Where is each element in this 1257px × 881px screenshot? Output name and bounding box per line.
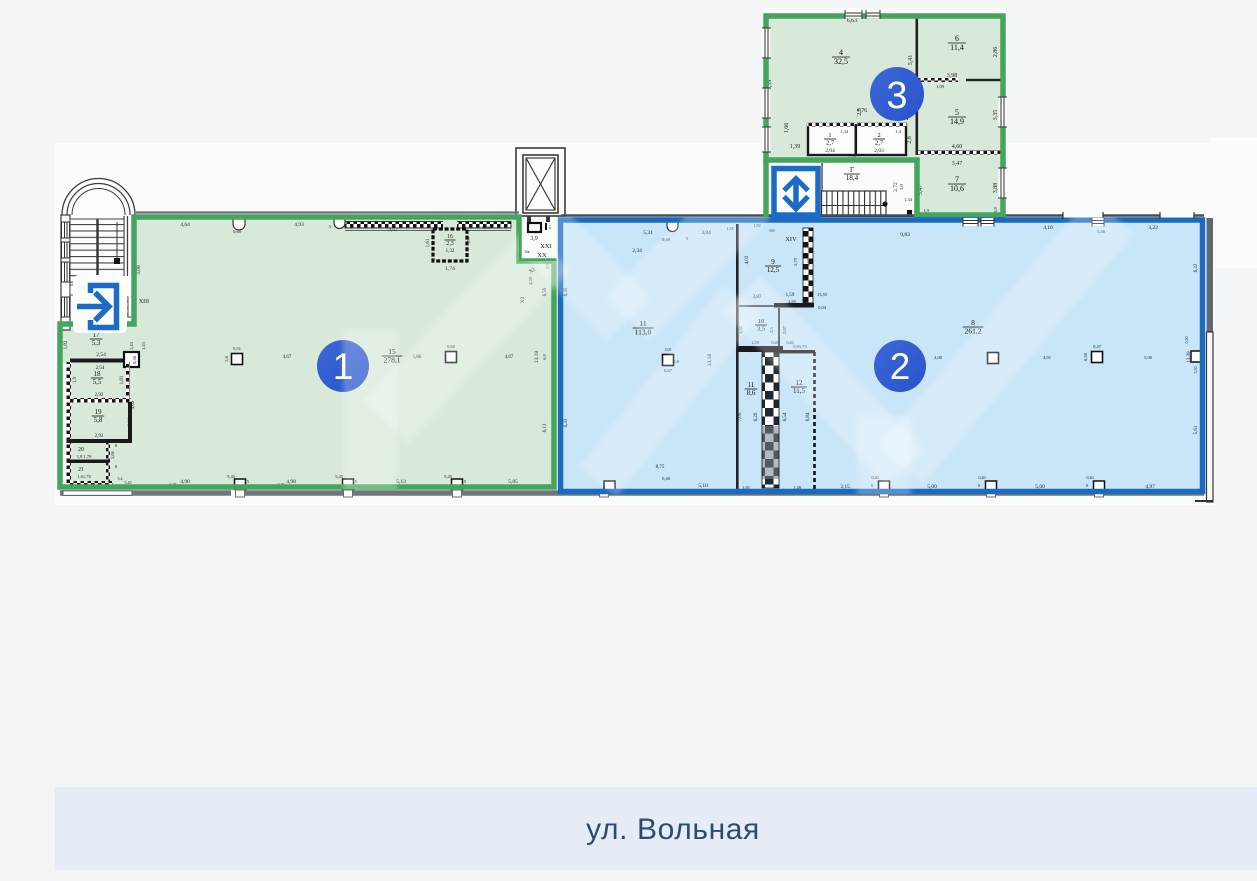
svg-text:5,8: 5,8 xyxy=(94,416,103,424)
svg-text:1,82: 1,82 xyxy=(64,340,69,349)
svg-text:9: 9 xyxy=(771,258,775,266)
svg-text:2,86: 2,86 xyxy=(993,47,999,58)
svg-text:5,31: 5,31 xyxy=(643,230,653,236)
svg-text:3,08: 3,08 xyxy=(136,265,142,275)
svg-text:1,32: 1,32 xyxy=(446,249,455,254)
svg-text:2,03: 2,03 xyxy=(874,148,884,154)
svg-text:4,16: 4,16 xyxy=(1043,225,1053,231)
svg-text:8,75: 8,75 xyxy=(656,465,665,470)
svg-text:4,64: 4,64 xyxy=(180,222,190,228)
svg-text:2,7: 2,7 xyxy=(826,140,835,147)
svg-text:XIII: XIII xyxy=(139,299,149,305)
svg-text:8: 8 xyxy=(1086,483,1088,488)
svg-text:6: 6 xyxy=(955,34,959,43)
svg-text:5,61: 5,61 xyxy=(1194,425,1199,434)
svg-text:2,54: 2,54 xyxy=(96,366,105,371)
svg-text:13,18: 13,18 xyxy=(534,351,540,364)
svg-text:ул. Вольная: ул. Вольная xyxy=(586,813,760,846)
svg-text:2,54: 2,54 xyxy=(96,352,106,358)
svg-text:32,5: 32,5 xyxy=(834,57,848,66)
svg-text:XX: XX xyxy=(537,252,547,259)
svg-text:6,63: 6,63 xyxy=(847,18,858,24)
svg-text:1,39: 1,39 xyxy=(790,144,801,150)
svg-text:7: 7 xyxy=(955,175,959,184)
svg-text:5,10: 5,10 xyxy=(698,483,708,489)
svg-text:18,4: 18,4 xyxy=(846,174,859,182)
svg-text:3,47: 3,47 xyxy=(952,161,963,167)
svg-text:5,05: 5,05 xyxy=(508,479,518,485)
svg-text:12,5: 12,5 xyxy=(767,266,780,274)
svg-text:XIV: XIV xyxy=(785,236,797,243)
svg-text:6,54: 6,54 xyxy=(783,412,788,421)
svg-text:2,34: 2,34 xyxy=(632,248,642,254)
svg-text:6,13: 6,13 xyxy=(543,423,548,432)
svg-text:16: 16 xyxy=(447,234,453,240)
svg-text:21: 21 xyxy=(78,467,84,473)
svg-text:18: 18 xyxy=(94,370,102,378)
svg-text:2,8: 2,8 xyxy=(907,136,913,144)
svg-text:11,4: 11,4 xyxy=(950,43,964,52)
svg-text:2,7: 2,7 xyxy=(875,140,884,147)
svg-text:4: 4 xyxy=(839,48,843,57)
svg-text:4,02: 4,02 xyxy=(131,400,136,409)
svg-text:4,57: 4,57 xyxy=(388,227,398,233)
svg-text:2,5: 2,5 xyxy=(857,108,863,116)
svg-text:2: 2 xyxy=(890,346,911,387)
svg-text:3ж: 3ж xyxy=(524,249,530,254)
svg-text:4,67: 4,67 xyxy=(505,355,514,360)
svg-text:10,6: 10,6 xyxy=(950,184,964,193)
svg-text:3,22: 3,22 xyxy=(1148,225,1158,231)
svg-text:6,33: 6,33 xyxy=(564,418,569,427)
svg-text:6,84: 6,84 xyxy=(806,412,811,421)
svg-text:19: 19 xyxy=(95,408,103,416)
svg-text:13,39: 13,39 xyxy=(1187,351,1192,363)
svg-text:4,90: 4,90 xyxy=(180,479,190,485)
svg-text:8,6: 8,6 xyxy=(747,389,756,397)
svg-text:5: 5 xyxy=(955,108,959,117)
svg-text:4,93: 4,93 xyxy=(294,222,304,228)
svg-text:6,22: 6,22 xyxy=(1194,263,1199,272)
svg-text:2,92: 2,92 xyxy=(95,434,104,439)
svg-text:1,9: 1,9 xyxy=(73,376,78,383)
svg-text:2,3: 2,3 xyxy=(446,241,454,247)
svg-text:4,98: 4,98 xyxy=(286,479,296,485)
svg-text:3,88: 3,88 xyxy=(993,183,999,194)
svg-text:5,3: 5,3 xyxy=(92,339,101,347)
svg-text:6,29: 6,29 xyxy=(754,412,759,421)
svg-text:2: 2 xyxy=(877,132,880,139)
svg-text:9,83: 9,83 xyxy=(900,232,910,238)
svg-text:5,41: 5,41 xyxy=(908,55,914,66)
svg-text:1,61: 1,61 xyxy=(426,238,431,247)
svg-text:4,67: 4,67 xyxy=(283,355,292,360)
svg-text:4,03: 4,03 xyxy=(745,255,750,264)
svg-text:7,05: 7,05 xyxy=(738,412,743,421)
svg-text:3,9: 3,9 xyxy=(530,236,538,242)
svg-text:4,60: 4,60 xyxy=(952,144,963,150)
svg-text:2,92: 2,92 xyxy=(95,393,104,398)
svg-text:8: 8 xyxy=(978,483,980,488)
svg-text:20: 20 xyxy=(78,447,84,453)
svg-text:14,9: 14,9 xyxy=(950,117,964,126)
svg-text:1,66: 1,66 xyxy=(784,123,790,134)
svg-text:5,13: 5,13 xyxy=(396,479,406,485)
svg-text:2,01: 2,01 xyxy=(128,417,133,426)
svg-text:3: 3 xyxy=(886,75,907,117)
svg-text:5,5: 5,5 xyxy=(93,378,102,386)
svg-text:11: 11 xyxy=(748,381,755,389)
svg-text:1: 1 xyxy=(828,132,831,139)
svg-text:1,74: 1,74 xyxy=(445,266,455,272)
svg-text:3,98: 3,98 xyxy=(947,73,958,79)
svg-text:3,35: 3,35 xyxy=(993,110,999,121)
svg-text:1,81: 1,81 xyxy=(120,375,125,384)
svg-text:1,59: 1,59 xyxy=(786,293,795,298)
svg-text:2,04: 2,04 xyxy=(825,148,835,154)
svg-text:XXI: XXI xyxy=(540,243,552,250)
svg-text:Г: Г xyxy=(850,166,854,174)
